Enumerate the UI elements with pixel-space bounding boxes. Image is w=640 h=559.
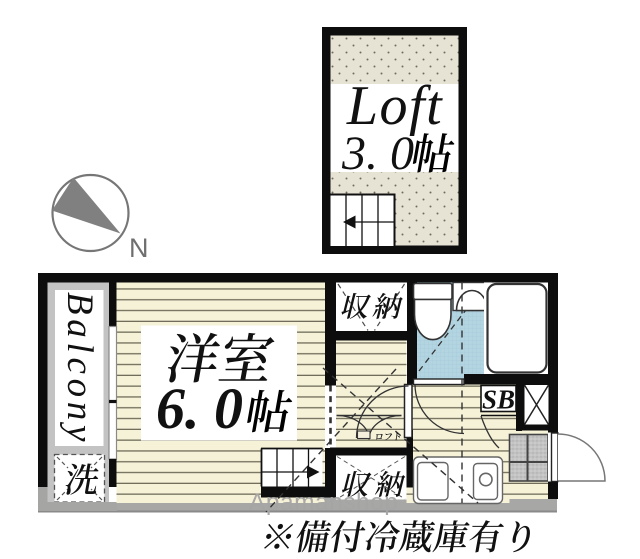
svg-text:N: N <box>129 233 149 263</box>
svg-text:SB: SB <box>482 385 515 415</box>
svg-text:3. 0: 3. 0 <box>341 127 414 180</box>
svg-text:Apamanshop: Apamanshop <box>249 489 398 516</box>
svg-text:Balcony: Balcony <box>59 292 100 446</box>
svg-text:6. 0: 6. 0 <box>156 376 243 441</box>
